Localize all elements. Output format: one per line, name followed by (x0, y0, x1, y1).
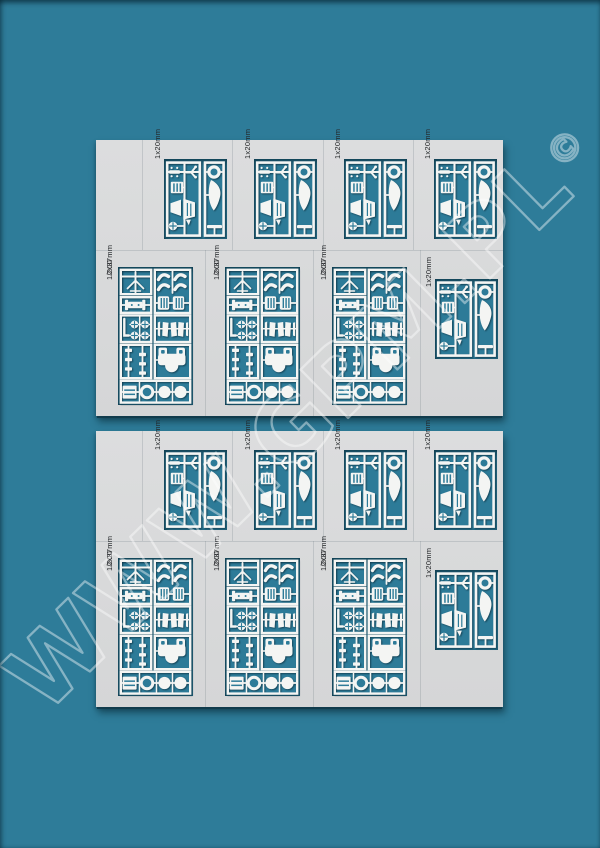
cut-line (413, 140, 414, 250)
caliber-label: 1x20mm (153, 117, 163, 159)
sprue-parts-graphic-small (435, 570, 498, 650)
caliber-label: 1x20mm (153, 408, 163, 450)
sprue-window (344, 159, 407, 239)
cut-line (96, 541, 503, 542)
sprue-parts-graphic-small (254, 450, 317, 530)
caliber-label: 1x20mm (333, 408, 343, 450)
cut-line (232, 431, 233, 541)
sprue-parts-graphic-small (344, 450, 407, 530)
sprue-window (164, 450, 227, 530)
sprue-parts-graphic-small (434, 159, 497, 239)
sprue-parts-graphic-small (164, 450, 227, 530)
caliber-label: 2x37mm (105, 233, 115, 275)
sprue-window (254, 450, 317, 530)
sprue-parts-graphic-large (118, 558, 193, 696)
cut-line (142, 431, 143, 541)
caliber-label: 1x20mm (243, 408, 253, 450)
cut-line (232, 140, 233, 250)
sheets-stack: 1x20mm (96, 140, 503, 722)
cut-line (205, 541, 206, 707)
caliber-label: 1x20mm (243, 117, 253, 159)
cut-line (96, 250, 503, 251)
caliber-label: 1x20mm (333, 117, 343, 159)
scan-background: 1x20mm (0, 0, 600, 848)
sprue-window (344, 450, 407, 530)
caliber-label: 1x20mm (424, 536, 434, 578)
sprue-window (434, 450, 497, 530)
sprue-window (118, 267, 193, 405)
sprue-window (225, 558, 300, 696)
sprue-window (332, 558, 407, 696)
sprue-parts-graphic-small (344, 159, 407, 239)
sprue-window (435, 570, 498, 650)
sprue-window (164, 159, 227, 239)
cut-line (142, 140, 143, 250)
sprue-window (254, 159, 317, 239)
sprue-parts-graphic-small (164, 159, 227, 239)
sprue-parts-graphic-large (225, 558, 300, 696)
parts-sheet-1: 1x20mm (96, 140, 503, 416)
sprue-parts-graphic-small (435, 279, 498, 359)
parts-sheet-2: 1x20mm (96, 431, 503, 707)
sprue-parts-graphic-large (332, 267, 407, 405)
sprue-parts-graphic-large (225, 267, 300, 405)
caliber-label: 1x20mm (423, 117, 433, 159)
caliber-label: 1x20mm (423, 408, 433, 450)
cut-line (413, 431, 414, 541)
sprue-parts-graphic-small (254, 159, 317, 239)
sprue-window (118, 558, 193, 696)
caliber-label: 2x37mm (319, 524, 329, 566)
cut-line (420, 541, 421, 707)
cut-line (420, 250, 421, 416)
sprue-parts-graphic-large (118, 267, 193, 405)
caliber-label: 1x20mm (424, 245, 434, 287)
caliber-label: 2x37mm (212, 233, 222, 275)
caliber-label: 2x37mm (319, 233, 329, 275)
caliber-label: 2x37mm (212, 524, 222, 566)
sprue-parts-graphic-small (434, 450, 497, 530)
caliber-label: 2x37mm (105, 524, 115, 566)
cut-line (313, 541, 314, 707)
cut-line (313, 250, 314, 416)
sprue-window (332, 267, 407, 405)
watermark-copyright-icon: © (537, 120, 594, 177)
sprue-window (434, 159, 497, 239)
sprue-window (435, 279, 498, 359)
sprue-parts-graphic-large (332, 558, 407, 696)
cut-line (205, 250, 206, 416)
sprue-window (225, 267, 300, 405)
